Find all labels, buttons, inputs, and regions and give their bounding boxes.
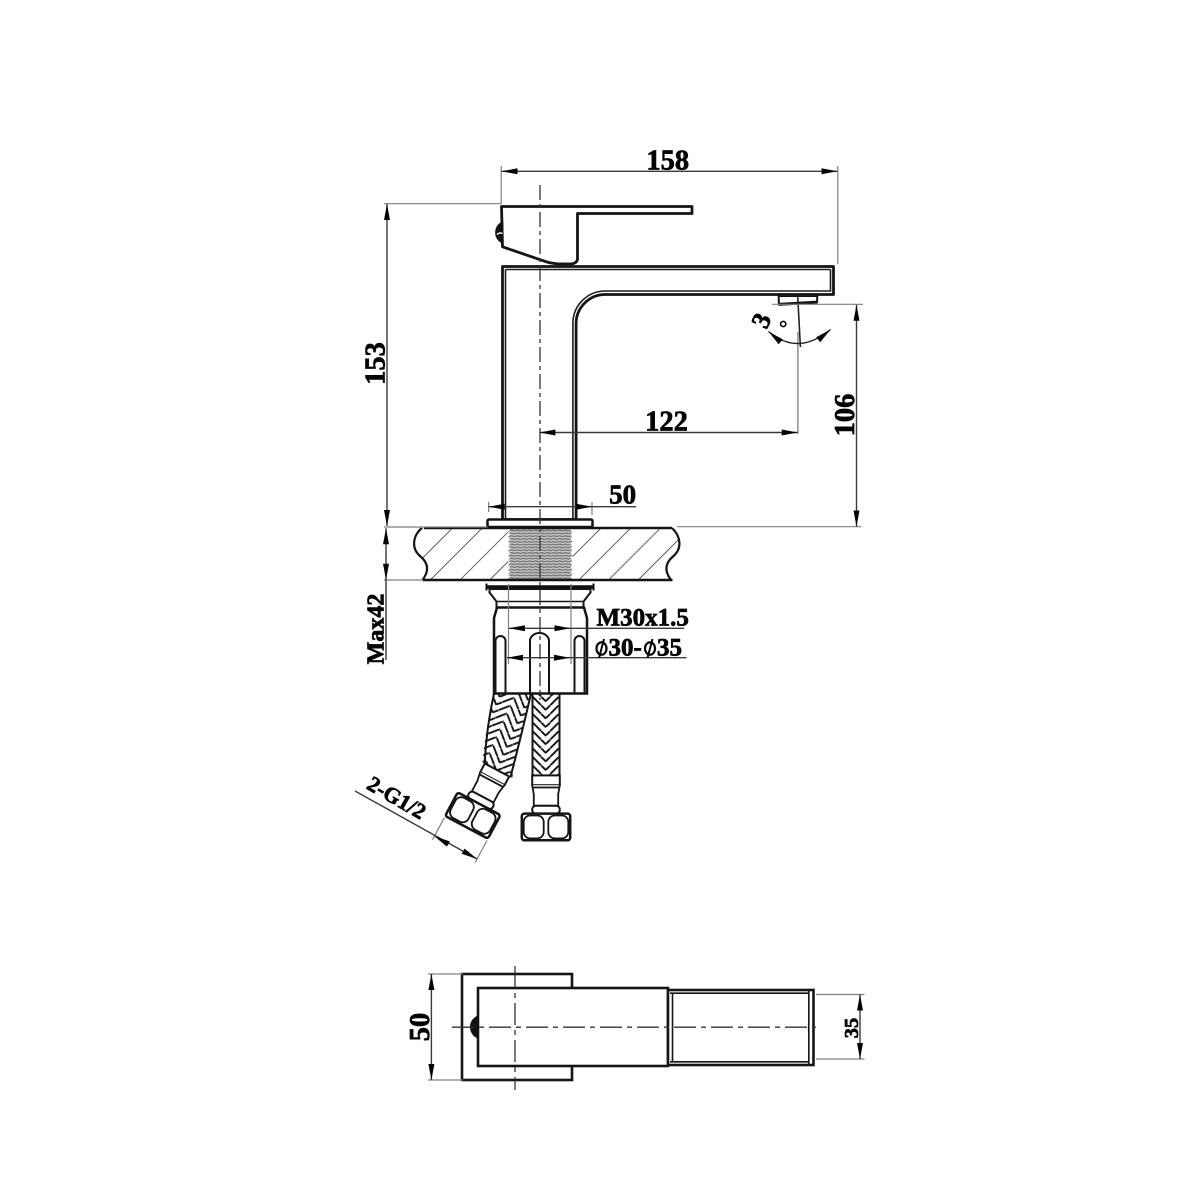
svg-text:50: 50 — [405, 1013, 436, 1042]
svg-text:35: 35 — [657, 635, 682, 662]
svg-text:122: 122 — [645, 406, 688, 437]
svg-text:50: 50 — [609, 480, 636, 510]
svg-text:30-: 30- — [609, 635, 642, 662]
svg-text:106: 106 — [830, 394, 861, 437]
svg-text:153: 153 — [360, 342, 391, 385]
svg-text:35: 35 — [841, 1018, 863, 1039]
svg-text:M30x1.5: M30x1.5 — [597, 605, 689, 632]
svg-text:158: 158 — [646, 146, 689, 177]
svg-text:Max42: Max42 — [364, 594, 390, 665]
